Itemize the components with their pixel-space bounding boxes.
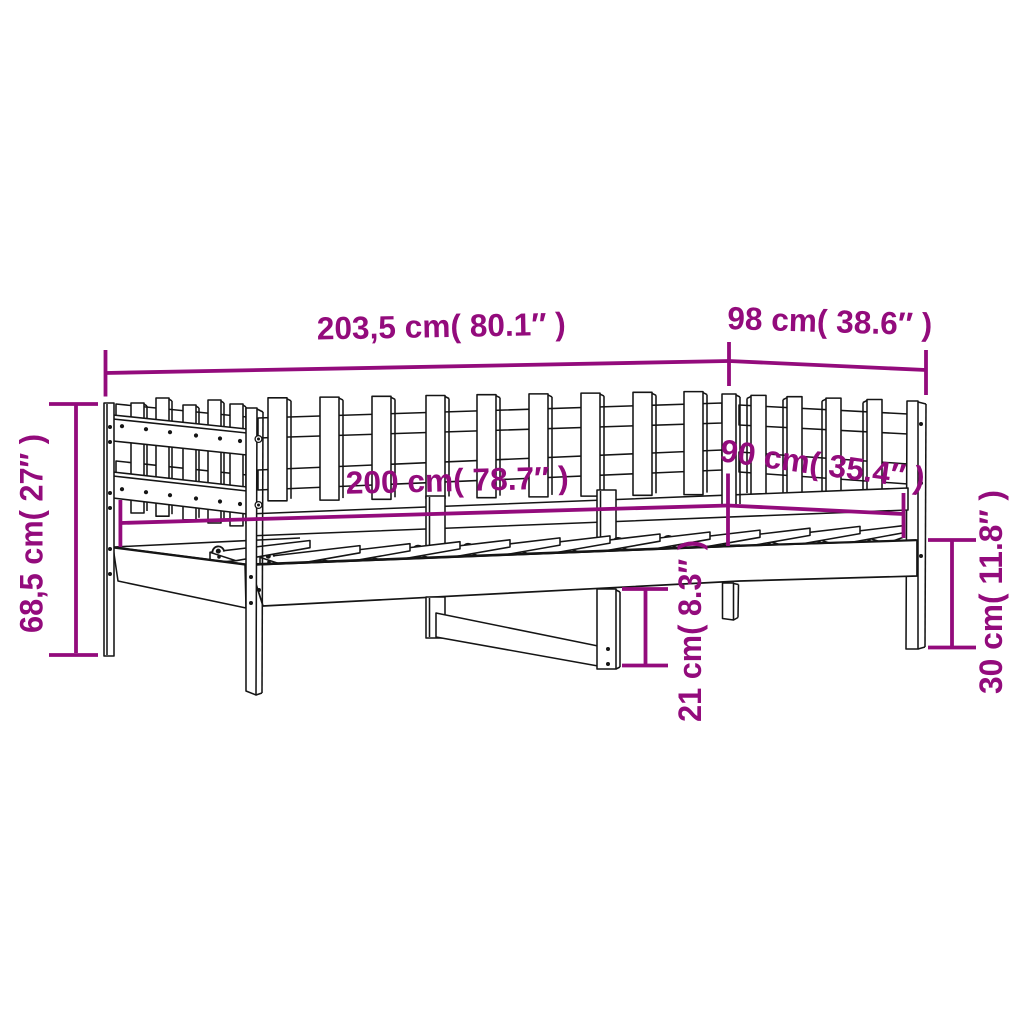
svg-text:203,5 cm( 80.1″ ): 203,5 cm( 80.1″ ) [316, 306, 566, 347]
svg-text:21 cm( 8.3″ ): 21 cm( 8.3″ ) [672, 540, 708, 722]
svg-text:30 cm( 11.8″ ): 30 cm( 11.8″ ) [973, 490, 1009, 694]
svg-text:200 cm( 78.7″ ): 200 cm( 78.7″ ) [345, 459, 569, 500]
svg-text:68,5 cm( 27″ ): 68,5 cm( 27″ ) [14, 434, 50, 633]
svg-text:98 cm( 38.6″ ): 98 cm( 38.6″ ) [727, 300, 933, 342]
